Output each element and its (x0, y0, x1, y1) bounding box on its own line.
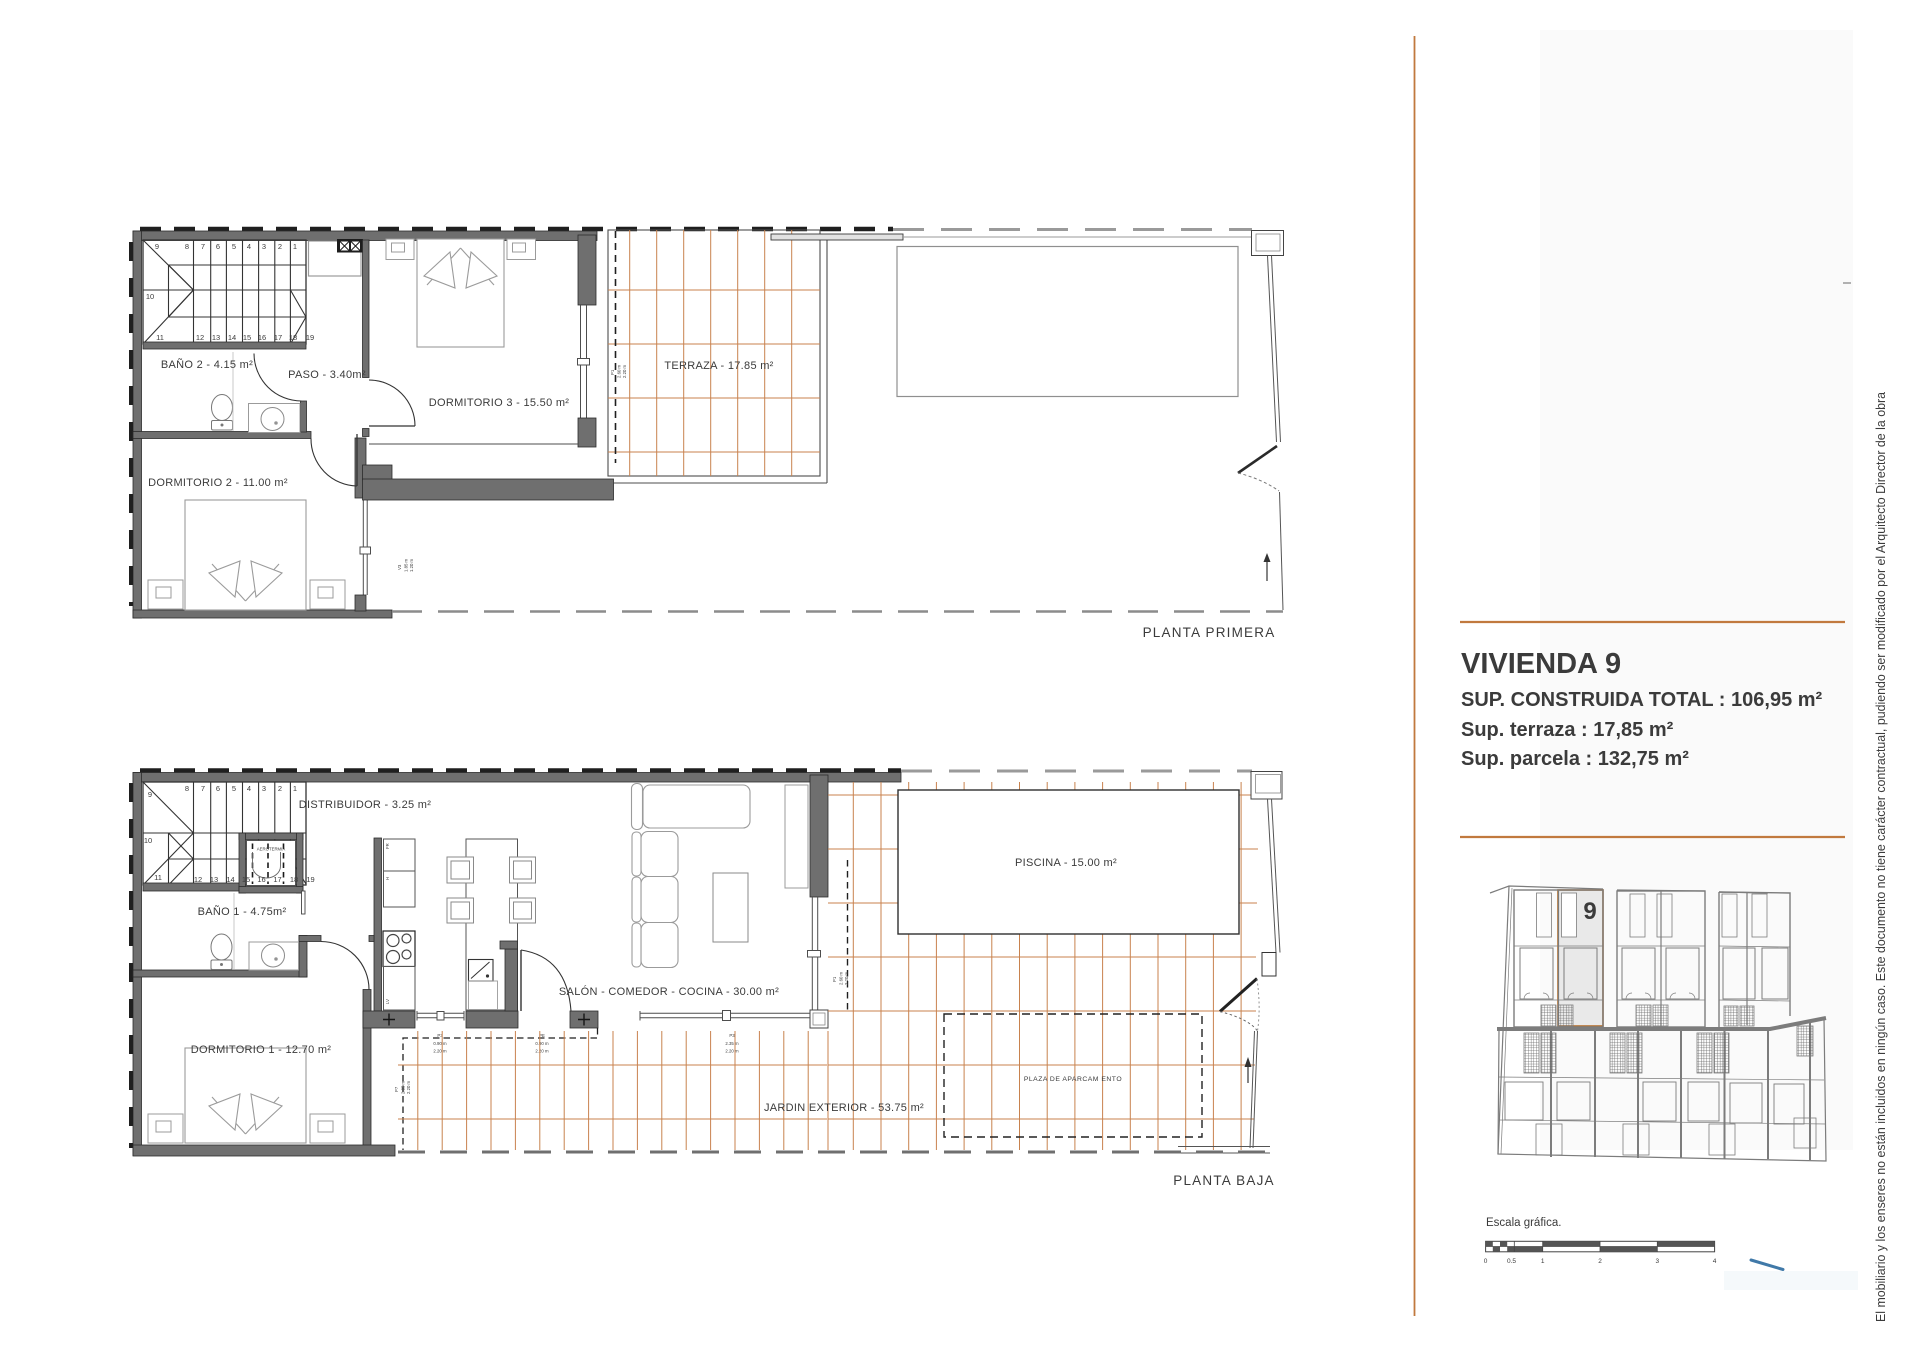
svg-text:1.20 m: 1.20 m (409, 558, 414, 572)
svg-text:PLANTA PRIMERA: PLANTA PRIMERA (1143, 625, 1276, 640)
svg-text:2.20 m: 2.20 m (535, 1049, 549, 1054)
svg-text:16: 16 (258, 333, 266, 342)
svg-text:14: 14 (228, 333, 236, 342)
svg-text:16: 16 (257, 875, 265, 884)
svg-text:5: 5 (232, 784, 236, 793)
svg-text:7: 7 (201, 784, 205, 793)
svg-text:9: 9 (155, 242, 159, 251)
svg-text:Sup. terraza : 17,85 m²: Sup. terraza : 17,85 m² (1461, 719, 1674, 741)
svg-text:4: 4 (247, 784, 251, 793)
svg-text:2.60 m: 2.60 m (617, 364, 622, 378)
svg-text:Sup. parcela : 132,75 m²: Sup. parcela : 132,75 m² (1461, 748, 1689, 770)
svg-text:0.90 m: 0.90 m (433, 1041, 447, 1046)
svg-text:PLAZA DE APARCAM ENTO: PLAZA DE APARCAM ENTO (1024, 1076, 1122, 1083)
svg-text:12: 12 (194, 875, 202, 884)
svg-text:H: H (385, 877, 390, 880)
svg-text:2.60 m: 2.60 m (839, 971, 844, 985)
svg-text:2.20 m: 2.20 m (844, 971, 849, 985)
svg-text:4: 4 (1713, 1258, 1717, 1265)
svg-text:PISCINA - 15.00 m²: PISCINA - 15.00 m² (1015, 857, 1117, 869)
svg-text:10: 10 (146, 292, 154, 301)
svg-text:14: 14 (226, 875, 234, 884)
svg-text:VIVIENDA 9: VIVIENDA 9 (1461, 648, 1621, 680)
svg-text:2.05 m: 2.05 m (401, 1080, 406, 1094)
svg-text:15: 15 (243, 333, 251, 342)
svg-text:0.90 m: 0.90 m (535, 1041, 549, 1046)
svg-text:1.85 m: 1.85 m (404, 558, 409, 572)
svg-text:13: 13 (212, 333, 220, 342)
svg-text:19: 19 (306, 875, 314, 884)
svg-text:3: 3 (262, 784, 266, 793)
svg-text:10: 10 (144, 836, 152, 845)
svg-text:6: 6 (216, 784, 220, 793)
svg-text:9: 9 (148, 790, 152, 799)
svg-text:2: 2 (278, 784, 282, 793)
svg-text:11: 11 (156, 333, 164, 342)
svg-text:8: 8 (185, 784, 189, 793)
svg-text:DISTRIBUIDOR - 3.25 m²: DISTRIBUIDOR - 3.25 m² (299, 799, 432, 811)
svg-text:2.20 m: 2.20 m (433, 1049, 447, 1054)
svg-text:3: 3 (262, 242, 266, 251)
svg-text:DORMITORIO 1 - 12.70 m²: DORMITORIO 1 - 12.70 m² (191, 1044, 332, 1056)
svg-text:1: 1 (1541, 1258, 1545, 1265)
svg-text:17: 17 (273, 875, 281, 884)
svg-text:17: 17 (274, 333, 282, 342)
svg-text:0.5: 0.5 (1507, 1258, 1516, 1265)
svg-text:5: 5 (232, 242, 236, 251)
svg-text:P1: P1 (610, 369, 615, 375)
svg-text:P3: P3 (729, 1033, 735, 1038)
svg-text:BAÑO 2 - 4.15 m²: BAÑO 2 - 4.15 m² (161, 358, 253, 371)
svg-text:2.20 m: 2.20 m (622, 364, 627, 378)
svg-text:AEROTERMIA: AEROTERMIA (257, 847, 286, 852)
svg-text:V3: V3 (397, 564, 402, 570)
svg-text:0: 0 (1484, 1258, 1488, 1265)
svg-text:18: 18 (290, 875, 298, 884)
svg-text:3: 3 (1655, 1258, 1659, 1265)
svg-text:2.20 m: 2.20 m (725, 1049, 739, 1054)
svg-text:15: 15 (242, 875, 250, 884)
svg-text:P7: P7 (394, 1086, 399, 1092)
svg-text:2: 2 (278, 242, 282, 251)
svg-text:7: 7 (201, 242, 205, 251)
svg-text:P1: P1 (832, 976, 837, 982)
svg-text:2.20 m: 2.20 m (406, 1080, 411, 1094)
svg-text:12: 12 (196, 333, 204, 342)
svg-text:El mobiliario y los enseres no: El mobiliario y los enseres no están inc… (1874, 392, 1888, 1322)
svg-text:SALÓN - COMEDOR - COCINA - 30.: SALÓN - COMEDOR - COCINA - 30.00 m² (559, 985, 779, 998)
svg-text:4: 4 (247, 242, 251, 251)
svg-text:SUP. CONSTRUIDA TOTAL : 106,95: SUP. CONSTRUIDA TOTAL : 106,95 m² (1461, 689, 1823, 711)
svg-text:2: 2 (1598, 1258, 1602, 1265)
svg-text:11: 11 (154, 873, 162, 882)
svg-text:8: 8 (185, 242, 189, 251)
svg-text:13: 13 (210, 875, 218, 884)
svg-text:19: 19 (306, 333, 314, 342)
svg-text:TERRAZA - 17.85 m²: TERRAZA - 17.85 m² (664, 360, 773, 372)
svg-text:9: 9 (1583, 898, 1596, 925)
svg-text:DORMITORIO 2 - 11.00 m²: DORMITORIO 2 - 11.00 m² (148, 477, 288, 489)
svg-text:1: 1 (293, 784, 297, 793)
svg-text:PASO - 3.40m²: PASO - 3.40m² (288, 369, 366, 381)
svg-text:PLANTA BAJA: PLANTA BAJA (1173, 1173, 1274, 1188)
svg-text:2.35 m: 2.35 m (725, 1041, 739, 1046)
svg-text:18: 18 (289, 333, 297, 342)
svg-text:DORMITORIO 3 - 15.50 m²: DORMITORIO 3 - 15.50 m² (429, 397, 570, 409)
svg-text:Escala gráfica.: Escala gráfica. (1486, 1217, 1561, 1229)
svg-text:6: 6 (216, 242, 220, 251)
svg-text:FR: FR (385, 843, 390, 849)
svg-text:JARDIN EXTERIOR - 53.75 m²: JARDIN EXTERIOR - 53.75 m² (764, 1102, 924, 1114)
svg-text:1: 1 (293, 242, 297, 251)
svg-text:BAÑO 1 - 4.75m²: BAÑO 1 - 4.75m² (198, 905, 287, 918)
svg-text:LV: LV (385, 999, 390, 1004)
